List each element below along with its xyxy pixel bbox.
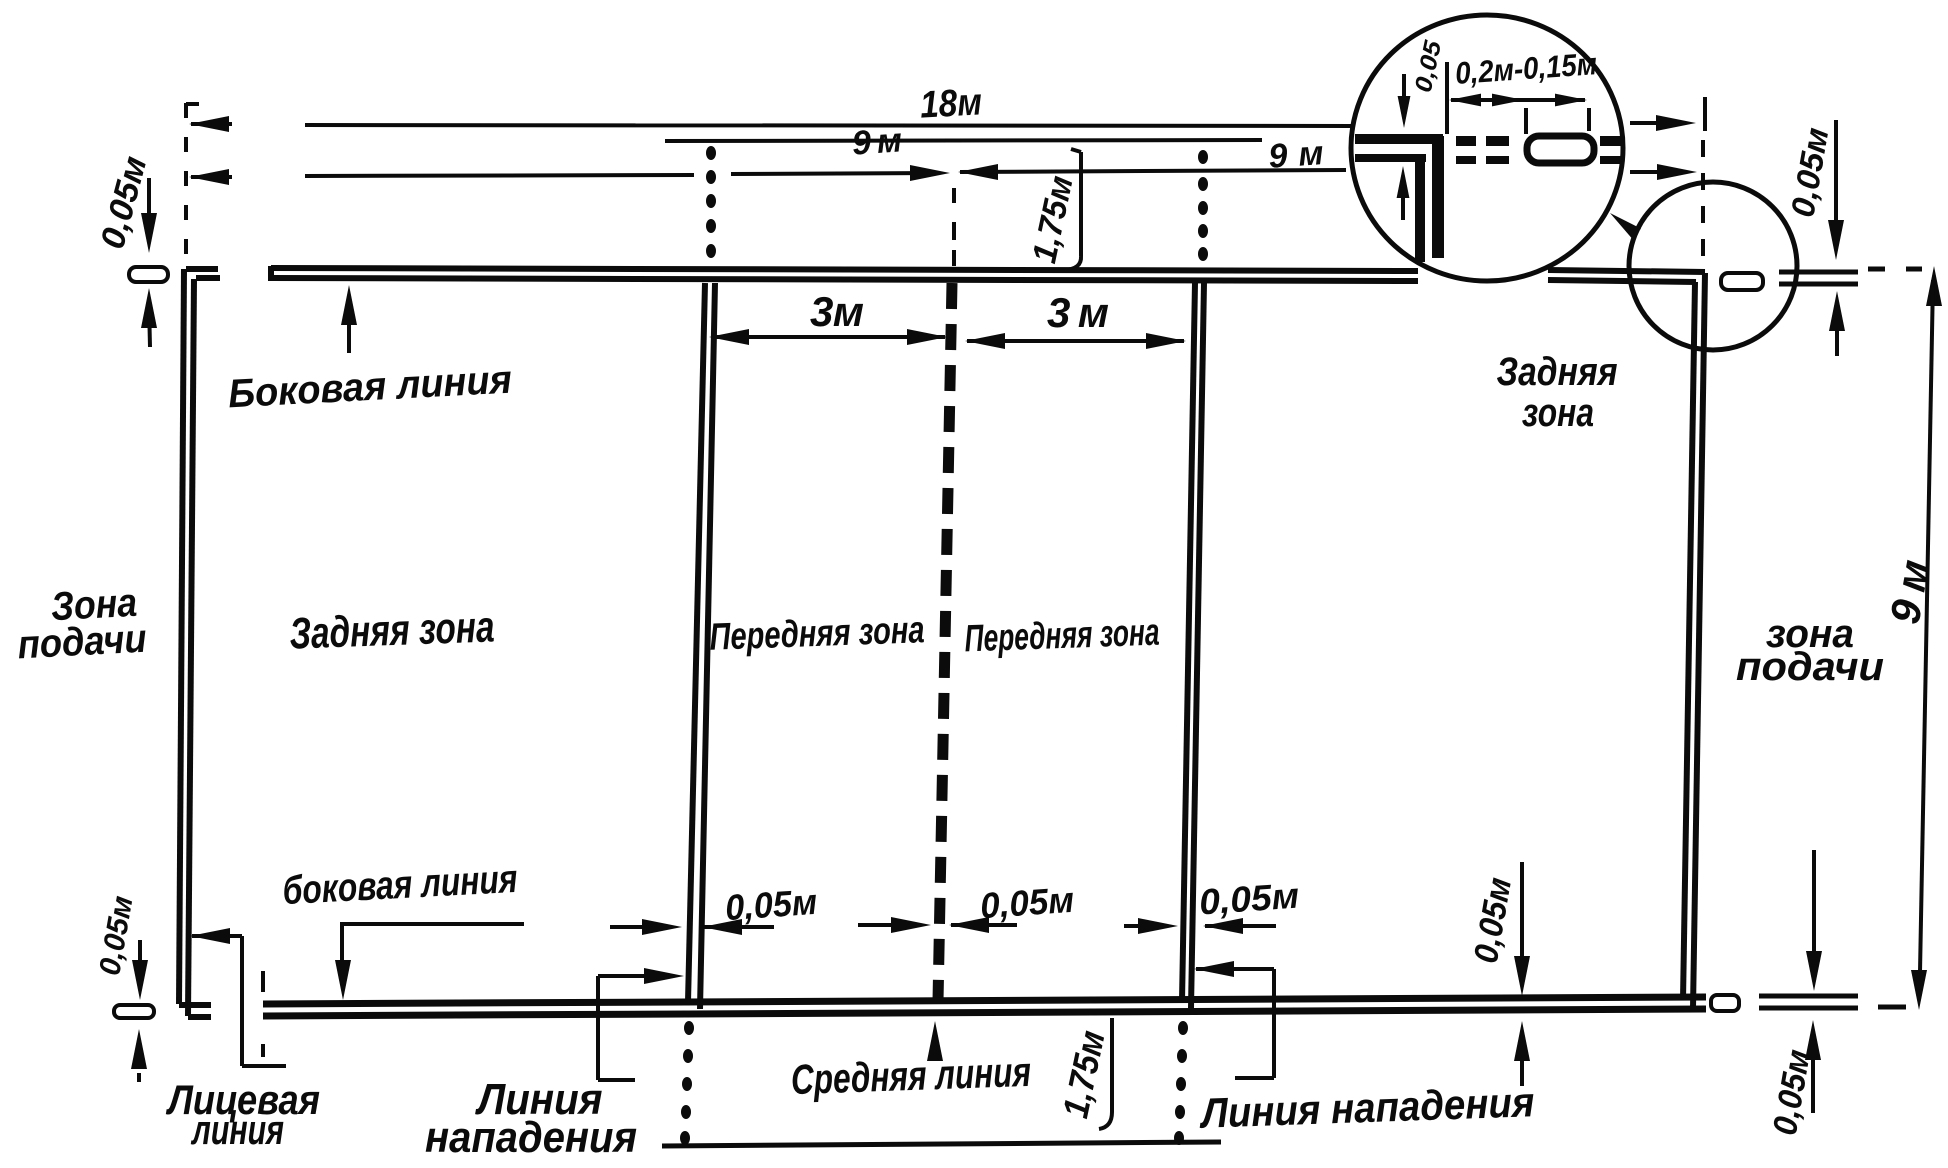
svg-text:0,05м: 0,05м — [979, 879, 1076, 926]
svg-text:линия: линия — [191, 1106, 284, 1153]
svg-text:3м: 3м — [1047, 289, 1109, 336]
svg-text:Задняя: Задняя — [1497, 350, 1618, 394]
svg-text:зона: зона — [1522, 391, 1594, 435]
svg-text:Средняя линия: Средняя линия — [790, 1048, 1031, 1103]
svg-text:3м: 3м — [810, 288, 864, 335]
svg-text:18м: 18м — [919, 81, 983, 126]
svg-text:подачи: подачи — [16, 617, 147, 668]
svg-text:нападения: нападения — [425, 1113, 637, 1162]
svg-text:0,05м: 0,05м — [1198, 875, 1301, 923]
svg-text:Задняя зона: Задняя зона — [289, 602, 496, 658]
svg-text:подачи: подачи — [1736, 645, 1884, 689]
svg-text:Передняя зона: Передняя зона — [964, 612, 1160, 661]
svg-text:0,05м: 0,05м — [724, 881, 819, 928]
svg-text:Передняя зона: Передняя зона — [709, 609, 925, 658]
